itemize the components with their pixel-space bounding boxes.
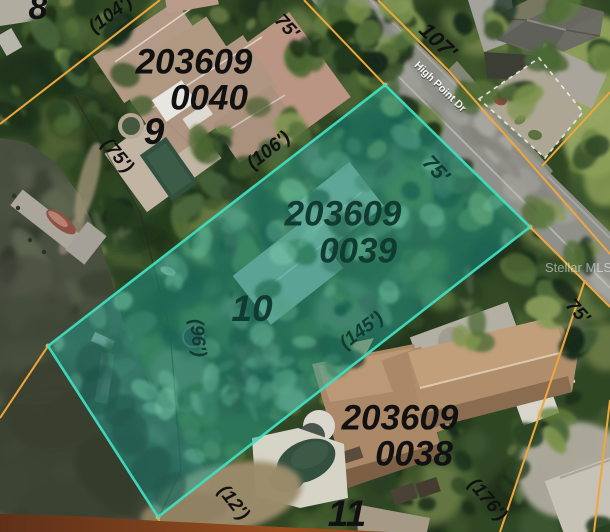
- svg-text:203609: 203609: [341, 398, 459, 437]
- svg-text:0038: 0038: [375, 434, 453, 473]
- svg-text:0040: 0040: [170, 78, 248, 117]
- svg-text:9: 9: [144, 111, 165, 152]
- svg-text:203609: 203609: [284, 194, 402, 233]
- svg-text:0039: 0039: [319, 231, 397, 270]
- svg-text:11: 11: [328, 493, 366, 532]
- svg-text:10: 10: [231, 288, 273, 329]
- svg-text:Stellar MLS: Stellar MLS: [545, 260, 610, 275]
- svg-text:203609: 203609: [135, 42, 253, 81]
- svg-text:8: 8: [29, 0, 48, 27]
- svg-text:(96'): (96'): [185, 318, 210, 358]
